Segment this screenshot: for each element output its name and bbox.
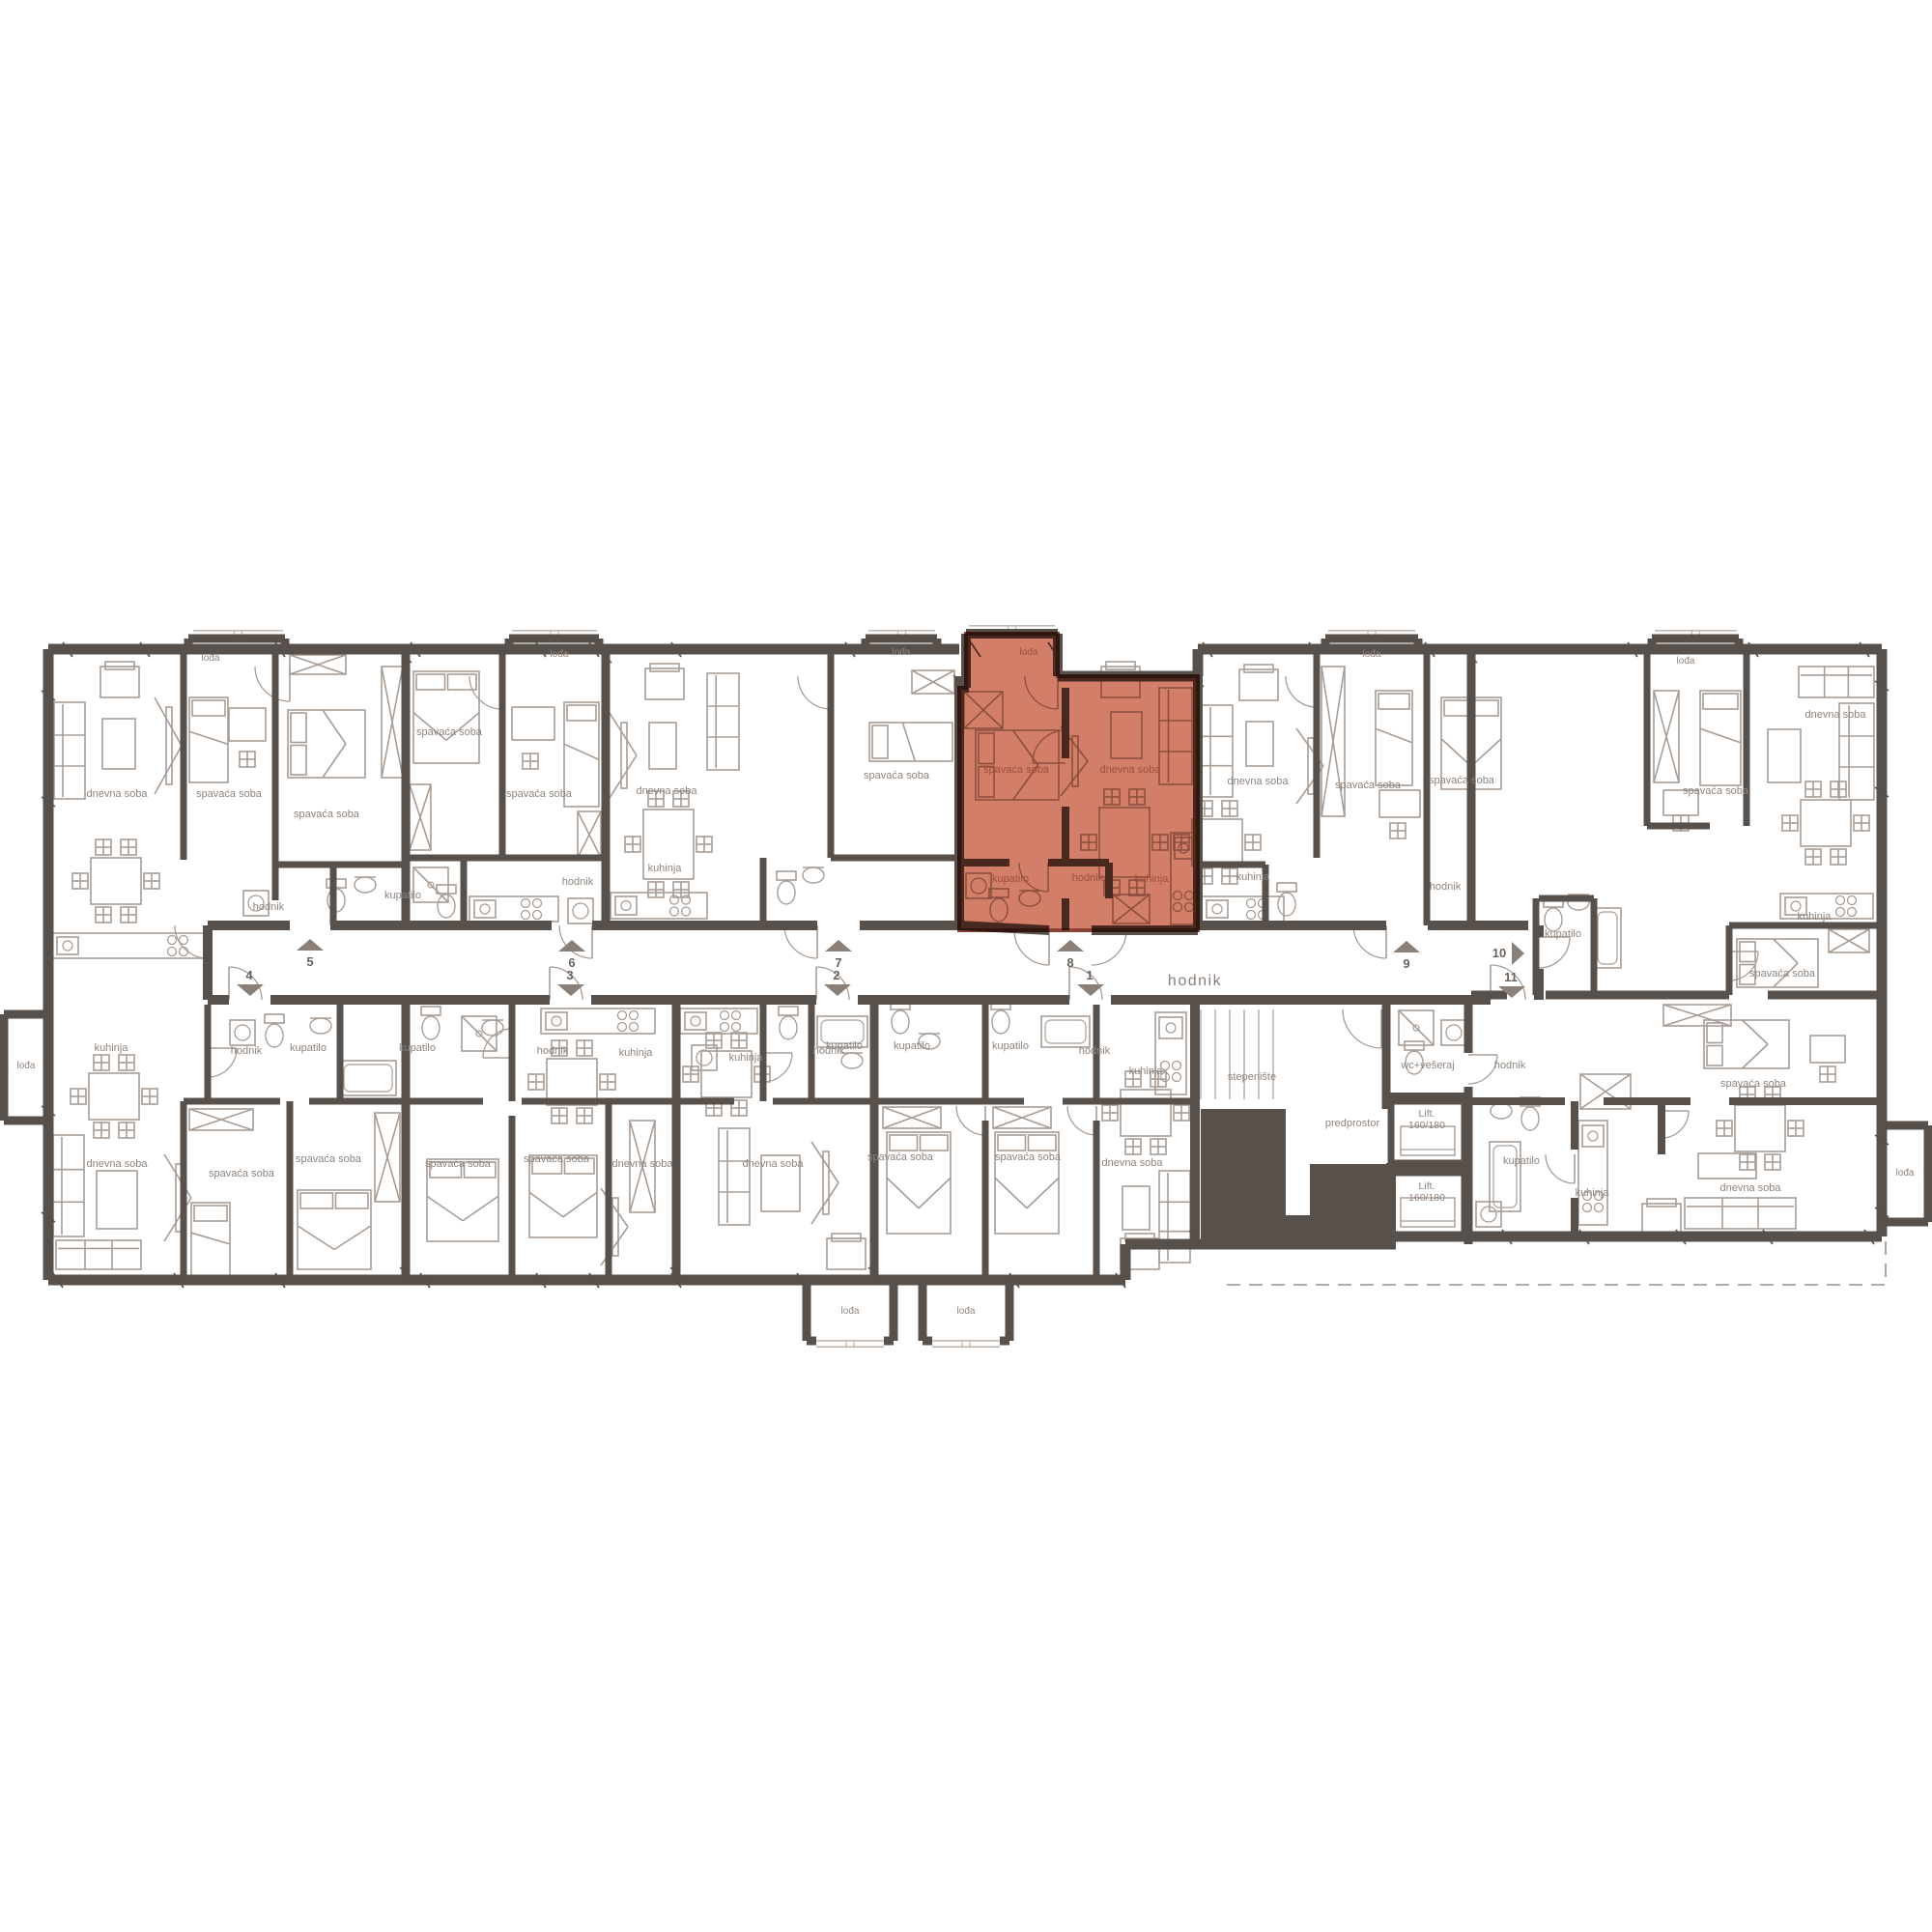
floor-plan-svg: Lift.160/180Lift.160/180 lođadnevna soba…: [0, 0, 1932, 1932]
room-label: spavaća soba: [209, 1168, 275, 1179]
room-label: kuhinja: [619, 1047, 654, 1059]
lift-size-label: 160/180: [1408, 1120, 1445, 1131]
room-label: lođa: [841, 1306, 860, 1317]
room-label: kupatilo: [384, 890, 421, 901]
room-label: lođa: [957, 1306, 976, 1317]
room-label: lođa: [202, 653, 220, 664]
room-label: kuhinja: [1236, 871, 1271, 883]
room-label: kupatilo: [1545, 928, 1581, 940]
lift-size-label: 160/180: [1408, 1192, 1445, 1204]
plan-background: [0, 0, 1932, 1932]
room-label: stepenište: [1228, 1071, 1276, 1083]
room-label: dnevna soba: [1102, 1157, 1164, 1169]
lift-label: Lift.: [1419, 1180, 1435, 1192]
room-label: dnevna soba: [1805, 709, 1867, 721]
room-label: hodnik: [1079, 1045, 1111, 1057]
room-label: hodnik: [231, 1045, 263, 1057]
room-label: kupatilo: [1503, 1155, 1540, 1167]
room-label: hodnik: [1072, 872, 1104, 884]
room-label: dnevna soba: [87, 788, 149, 800]
unit-number: 9: [1403, 956, 1409, 971]
floor-plan-stage: Lift.160/180Lift.160/180 lođadnevna soba…: [0, 0, 1932, 1932]
room-label: spavaća soba: [1429, 775, 1495, 786]
room-label: spavaća soba: [1683, 785, 1749, 797]
room-label: lođa: [1020, 647, 1038, 658]
unit-number: 11: [1504, 970, 1518, 984]
room-label: kupatilo: [992, 873, 1029, 885]
corridor-label: hodnik: [1168, 973, 1222, 989]
room-label: spavaća soba: [1335, 780, 1402, 791]
room-label: spavaća soba: [1720, 1078, 1787, 1090]
room-label: spavaća soba: [983, 764, 1050, 776]
room-label: kupatilo: [992, 1040, 1029, 1052]
room-label: spavaća soba: [296, 1153, 362, 1165]
room-label: kupatilo: [894, 1040, 930, 1052]
room-label: dnevna soba: [612, 1158, 674, 1170]
room-label: dnevna soba: [743, 1158, 805, 1170]
unit-number: 2: [833, 968, 839, 982]
room-label: kuhinja: [648, 863, 683, 874]
room-label: spavaća soba: [196, 788, 263, 800]
unit-number: 5: [306, 954, 313, 969]
lift-label: Lift.: [1419, 1108, 1435, 1120]
room-label: kupatilo: [399, 1042, 436, 1054]
room-label: spavaća soba: [995, 1151, 1062, 1163]
room-label: kuhinja: [1576, 1187, 1610, 1199]
unit-number: 4: [245, 968, 253, 982]
room-label: spavaća soba: [294, 809, 360, 820]
room-label: hodnik: [253, 901, 285, 913]
room-label: spavaća soba: [506, 788, 573, 800]
room-label: kupatilo: [826, 1040, 863, 1052]
room-label: hodnik: [1430, 881, 1462, 893]
room-label: dnevna soba: [637, 785, 698, 797]
room-label: lođa: [893, 647, 911, 658]
room-label: dnevna soba: [1720, 1182, 1782, 1194]
room-label: spavaća soba: [416, 726, 483, 738]
room-label: hodnik: [1494, 1060, 1526, 1071]
room-label: hodnik: [537, 1045, 569, 1057]
room-label: lođa: [1896, 1168, 1915, 1179]
selected-unit-overlay[interactable]: [959, 634, 1198, 930]
room-label: lođa: [1677, 656, 1695, 667]
unit-number: 3: [566, 968, 573, 982]
room-label: spavaća soba: [867, 1151, 934, 1163]
room-label: lođa: [1363, 649, 1381, 660]
room-label: dnevna soba: [1228, 776, 1290, 787]
room-label: kuhinja: [1135, 873, 1170, 885]
room-label: hodnik: [562, 876, 594, 888]
room-label: kuhinja: [729, 1052, 764, 1064]
room-label: spavaća soba: [425, 1158, 492, 1170]
room-label: spavaća soba: [1749, 968, 1816, 980]
room-label: dnevna soba: [87, 1158, 149, 1170]
room-label: kuhinja: [95, 1042, 129, 1054]
unit-number: 8: [1066, 955, 1073, 970]
unit-number: 1: [1086, 968, 1093, 982]
room-label: kuhinja: [1798, 911, 1833, 923]
room-label: dnevna soba: [1100, 764, 1162, 776]
room-label: kupatilo: [290, 1042, 327, 1054]
room-label: lođa: [551, 649, 569, 660]
room-label: kuhinja: [1129, 1065, 1164, 1077]
room-label: spavaća soba: [864, 770, 930, 781]
unit-number: 10: [1492, 946, 1506, 960]
room-label: predprostor: [1325, 1118, 1380, 1129]
room-label: lođa: [17, 1061, 36, 1071]
room-label: spavaća soba: [524, 1153, 590, 1165]
room-label: wc+vešeraj: [1400, 1060, 1454, 1071]
